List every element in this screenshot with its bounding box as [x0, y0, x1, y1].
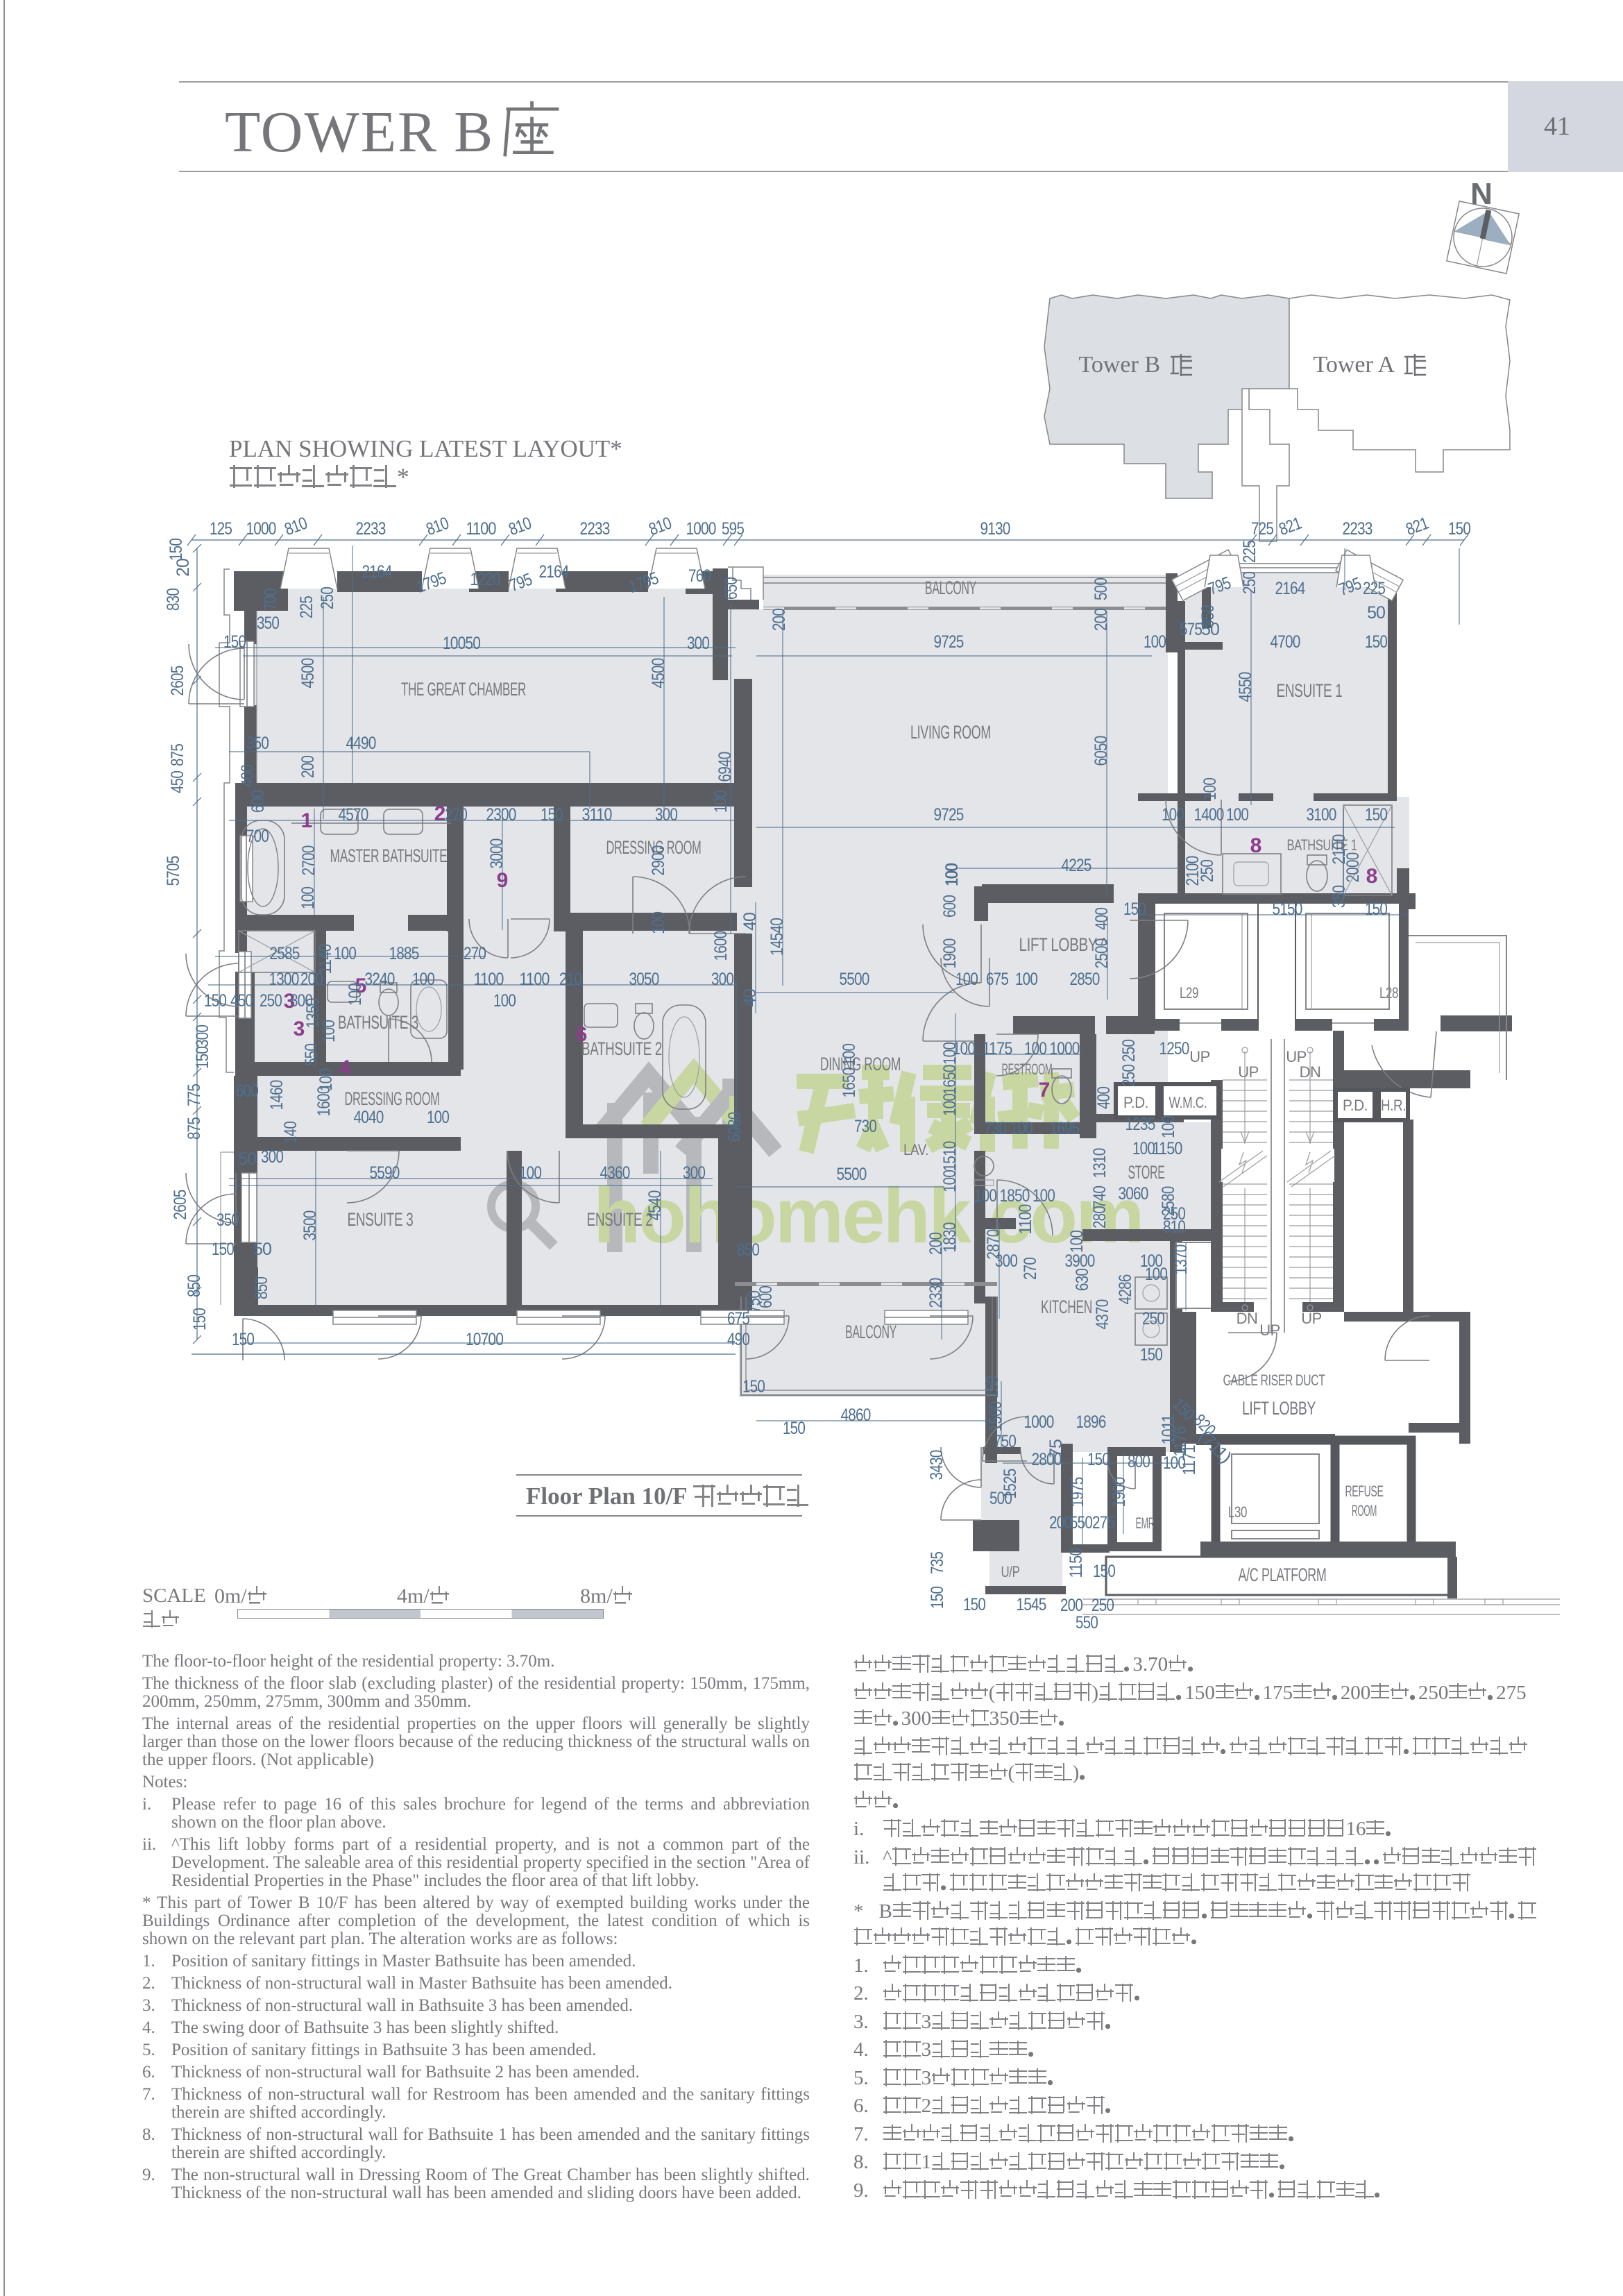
svg-text:100: 100: [711, 791, 731, 813]
svg-text:1500: 1500: [986, 1401, 1005, 1431]
svg-text:4500: 4500: [298, 658, 318, 688]
svg-text:BALCONY: BALCONY: [925, 577, 976, 598]
svg-text:5150: 5150: [1273, 900, 1302, 919]
svg-text:350: 350: [1329, 886, 1349, 908]
svg-text:600: 600: [236, 1081, 258, 1101]
svg-text:100: 100: [1145, 1265, 1167, 1284]
svg-text:1460: 1460: [267, 1080, 287, 1110]
svg-text:760: 760: [688, 566, 711, 586]
svg-text:490: 490: [727, 1330, 749, 1349]
svg-text:150: 150: [193, 1047, 212, 1069]
svg-text:KITCHEN: KITCHEN: [1041, 1297, 1092, 1317]
svg-text:100: 100: [1033, 1186, 1055, 1206]
svg-text:2: 2: [434, 802, 446, 825]
svg-text:L29: L29: [1180, 984, 1198, 1002]
svg-text:150: 150: [223, 632, 246, 652]
svg-text:4040: 4040: [354, 1108, 384, 1127]
svg-text:1695: 1695: [1050, 1119, 1080, 1138]
svg-text:DRESSING ROOM: DRESSING ROOM: [345, 1088, 440, 1109]
svg-text:4490: 4490: [346, 734, 376, 753]
svg-text:2500: 2500: [1092, 938, 1112, 968]
svg-text:650: 650: [722, 577, 741, 600]
svg-text:150: 150: [232, 1330, 254, 1349]
svg-text:150: 150: [1365, 900, 1387, 919]
svg-text:875: 875: [185, 1117, 204, 1140]
svg-text:1171: 1171: [1180, 1445, 1199, 1475]
svg-text:H.R.: H.R.: [1381, 1097, 1406, 1114]
svg-text:2233: 2233: [356, 519, 386, 539]
svg-text:150: 150: [928, 1587, 947, 1609]
svg-text:2233: 2233: [1343, 519, 1373, 539]
svg-text:150: 150: [1365, 805, 1387, 825]
svg-text:100: 100: [298, 887, 318, 909]
svg-text:225: 225: [1240, 541, 1259, 563]
svg-text:100: 100: [840, 1044, 859, 1066]
svg-text:1850: 1850: [1000, 1186, 1030, 1206]
svg-text:850: 850: [252, 1277, 271, 1299]
svg-text:675: 675: [986, 970, 1008, 989]
svg-text:210: 210: [559, 970, 581, 989]
svg-text:200: 200: [300, 970, 323, 989]
svg-text:100: 100: [493, 991, 516, 1011]
svg-text:3000: 3000: [487, 838, 507, 868]
svg-text:3110: 3110: [582, 805, 612, 825]
svg-text:ROOM: ROOM: [1352, 1502, 1377, 1519]
svg-text:7: 7: [1039, 1079, 1051, 1101]
svg-text:150: 150: [204, 991, 226, 1011]
svg-text:250: 250: [260, 991, 282, 1011]
svg-text:BATHSUITE 2: BATHSUITE 2: [581, 1038, 662, 1059]
svg-text:1011: 1011: [1159, 1415, 1178, 1444]
svg-text:675: 675: [727, 1309, 749, 1328]
svg-text:UP: UP: [1301, 1310, 1322, 1327]
svg-text:150: 150: [983, 1376, 1002, 1399]
svg-text:LAV.: LAV.: [903, 1141, 928, 1158]
svg-text:100: 100: [412, 970, 434, 989]
svg-text:100: 100: [1024, 1039, 1046, 1058]
svg-text:350: 350: [257, 614, 279, 633]
svg-text:9130: 9130: [980, 519, 1010, 539]
svg-text:L30: L30: [1228, 1503, 1247, 1521]
svg-text:3240: 3240: [365, 970, 395, 989]
svg-text:1150: 1150: [1153, 1139, 1182, 1158]
svg-text:270: 270: [464, 944, 486, 963]
svg-text:500: 500: [989, 1489, 1012, 1508]
svg-text:3100: 3100: [1307, 805, 1336, 825]
svg-text:4360: 4360: [600, 1163, 630, 1183]
svg-text:9725: 9725: [934, 632, 964, 652]
svg-text:750: 750: [994, 1432, 1016, 1451]
svg-text:400: 400: [1092, 908, 1112, 930]
svg-text:100: 100: [519, 1163, 541, 1183]
svg-text:1000: 1000: [1024, 1412, 1054, 1432]
svg-text:STORE: STORE: [1128, 1162, 1165, 1183]
svg-text:UP: UP: [1259, 1322, 1280, 1339]
svg-text:100: 100: [346, 984, 365, 1006]
svg-text:1250: 1250: [1159, 1039, 1189, 1058]
svg-text:40: 40: [740, 989, 760, 1007]
svg-text:BATHSUITE 3: BATHSUITE 3: [338, 1012, 418, 1033]
svg-text:ENSUITE 1: ENSUITE 1: [1277, 680, 1343, 701]
svg-text:1370: 1370: [1171, 1244, 1191, 1274]
svg-text:150: 150: [212, 1240, 234, 1259]
svg-text:630: 630: [1073, 1269, 1092, 1291]
svg-text:150: 150: [167, 539, 186, 561]
svg-text:2164: 2164: [1275, 579, 1306, 598]
svg-text:450: 450: [230, 991, 253, 1011]
svg-text:250: 250: [1119, 1065, 1139, 1087]
svg-text:ENSUITE 3: ENSUITE 3: [348, 1209, 414, 1230]
svg-text:100: 100: [1132, 1139, 1155, 1158]
svg-text:740: 740: [1090, 1186, 1110, 1208]
svg-text:575: 575: [1180, 620, 1202, 639]
svg-text:6: 6: [576, 1023, 588, 1046]
svg-text:8: 8: [1250, 834, 1262, 857]
svg-text:2300: 2300: [486, 805, 516, 825]
svg-text:821: 821: [1403, 514, 1431, 539]
svg-text:100: 100: [1226, 805, 1248, 825]
svg-text:2000: 2000: [1343, 852, 1363, 882]
svg-text:DN: DN: [1237, 1310, 1258, 1327]
svg-text:1100: 1100: [466, 519, 496, 539]
svg-text:550: 550: [302, 1044, 321, 1066]
svg-text:850: 850: [185, 1275, 204, 1297]
svg-text:2605: 2605: [171, 1190, 190, 1219]
svg-text:550: 550: [1070, 1513, 1092, 1533]
svg-text:250: 250: [318, 587, 337, 609]
svg-text:100: 100: [316, 1069, 336, 1091]
svg-text:400: 400: [1094, 1087, 1114, 1109]
svg-text:1175: 1175: [983, 1039, 1012, 1058]
svg-text:150: 150: [963, 1595, 985, 1614]
svg-text:2330: 2330: [926, 1278, 946, 1308]
svg-text:725: 725: [1251, 519, 1273, 539]
svg-text:100: 100: [974, 1186, 996, 1206]
svg-text:1220: 1220: [470, 570, 500, 589]
svg-text:150: 150: [541, 805, 563, 825]
svg-text:730: 730: [984, 1119, 1006, 1138]
svg-text:THE GREAT CHAMBER: THE GREAT CHAMBER: [401, 679, 526, 700]
svg-text:600: 600: [756, 1286, 776, 1308]
svg-text:150: 150: [1365, 632, 1387, 652]
svg-text:1310: 1310: [1090, 1148, 1110, 1178]
svg-text:2164: 2164: [539, 562, 570, 582]
svg-text:100: 100: [1015, 970, 1037, 989]
svg-text:40: 40: [740, 913, 760, 931]
svg-text:300: 300: [711, 970, 733, 989]
svg-text:MASTER BATHSUITE: MASTER BATHSUITE: [330, 845, 448, 866]
svg-text:50: 50: [253, 1240, 271, 1259]
svg-text:150: 150: [783, 1419, 805, 1438]
svg-text:200: 200: [1049, 1513, 1071, 1533]
svg-text:8: 8: [1366, 865, 1378, 888]
svg-text:ENSUITE 2: ENSUITE 2: [587, 1209, 653, 1230]
svg-text:875: 875: [168, 744, 187, 766]
svg-text:700: 700: [246, 827, 269, 846]
svg-text:4540: 4540: [645, 1190, 665, 1220]
svg-text:1830: 1830: [940, 1222, 960, 1252]
svg-text:4286: 4286: [1116, 1274, 1135, 1304]
svg-text:4550: 4550: [1236, 672, 1255, 702]
svg-text:6940: 6940: [715, 752, 735, 782]
svg-text:700: 700: [261, 589, 280, 611]
svg-text:830: 830: [164, 589, 183, 611]
svg-text:DN: DN: [1300, 1063, 1321, 1081]
svg-text:600: 600: [940, 895, 960, 918]
svg-text:270: 270: [445, 805, 467, 825]
svg-text:6080: 6080: [725, 1112, 745, 1142]
svg-text:4860: 4860: [841, 1406, 871, 1425]
svg-text:4700: 4700: [1271, 632, 1300, 652]
svg-text:P.D.: P.D.: [1343, 1097, 1368, 1114]
svg-text:250: 250: [1119, 1040, 1139, 1062]
svg-text:595: 595: [722, 519, 744, 539]
svg-text:EMR: EMR: [1136, 1514, 1155, 1532]
svg-text:100: 100: [942, 864, 962, 886]
svg-text:3060: 3060: [1119, 1184, 1148, 1204]
svg-text:280: 280: [1090, 1206, 1110, 1229]
svg-text:3500: 3500: [300, 1210, 320, 1240]
svg-text:810: 810: [646, 514, 674, 539]
svg-text:150: 150: [190, 1308, 210, 1331]
svg-text:850: 850: [737, 1240, 759, 1260]
svg-text:UP: UP: [1238, 1063, 1259, 1081]
svg-text:1510: 1510: [940, 1141, 960, 1171]
svg-text:2850: 2850: [1070, 970, 1100, 989]
svg-text:A/C PLATFORM: A/C PLATFORM: [1239, 1564, 1327, 1585]
svg-text:4225: 4225: [1062, 856, 1091, 875]
svg-text:1885: 1885: [389, 944, 419, 963]
svg-text:2585: 2585: [270, 944, 300, 963]
svg-text:150: 150: [1093, 1562, 1115, 1581]
svg-text:2233: 2233: [580, 519, 610, 539]
svg-text:10700: 10700: [466, 1330, 503, 1349]
svg-text:BALCONY: BALCONY: [845, 1322, 897, 1342]
svg-text:1400: 1400: [1194, 805, 1224, 825]
svg-text:810: 810: [282, 514, 309, 539]
svg-text:100: 100: [1200, 778, 1220, 800]
svg-text:1900: 1900: [1110, 1477, 1129, 1507]
svg-text:1900: 1900: [940, 938, 960, 968]
svg-text:150: 150: [1123, 900, 1146, 919]
svg-text:5500: 5500: [837, 1165, 867, 1184]
svg-text:100: 100: [1159, 1116, 1178, 1138]
svg-text:4500: 4500: [649, 658, 668, 688]
svg-text:775: 775: [185, 1084, 204, 1106]
svg-text:225: 225: [1363, 579, 1385, 598]
svg-text:4570: 4570: [339, 805, 368, 825]
svg-text:810: 810: [1163, 1217, 1185, 1237]
svg-text:250: 250: [1142, 1309, 1164, 1328]
svg-text:P.D.: P.D.: [1123, 1094, 1148, 1111]
svg-text:275: 275: [1092, 1513, 1114, 1533]
svg-text:100: 100: [1144, 632, 1166, 652]
svg-text:5705: 5705: [164, 856, 183, 886]
svg-text:UP: UP: [1189, 1048, 1210, 1065]
svg-text:3050: 3050: [629, 970, 659, 989]
svg-text:DINING ROOM: DINING ROOM: [820, 1054, 901, 1074]
svg-text:100: 100: [319, 1020, 339, 1043]
svg-text:50: 50: [1367, 603, 1385, 623]
svg-text:1300: 1300: [269, 970, 299, 989]
svg-text:810: 810: [423, 514, 451, 539]
svg-text:821: 821: [1276, 514, 1304, 539]
svg-text:225: 225: [297, 596, 316, 618]
svg-text:LIFT LOBBY: LIFT LOBBY: [1242, 1398, 1316, 1419]
svg-text:100: 100: [1162, 805, 1184, 825]
svg-text:1000: 1000: [686, 519, 716, 539]
svg-text:50: 50: [238, 1149, 256, 1169]
svg-text:2100: 2100: [1183, 856, 1203, 886]
svg-text:1975: 1975: [1068, 1477, 1087, 1507]
svg-text:450: 450: [168, 771, 187, 793]
svg-text:100: 100: [1010, 1119, 1033, 1138]
svg-text:6050: 6050: [1091, 736, 1111, 766]
svg-text:14540: 14540: [767, 918, 787, 956]
svg-text:150: 150: [1087, 1450, 1110, 1469]
svg-text:4370: 4370: [1093, 1299, 1112, 1329]
svg-text:140: 140: [281, 1122, 300, 1144]
svg-text:200: 200: [770, 609, 789, 631]
svg-text:200: 200: [1060, 1596, 1082, 1615]
svg-text:100: 100: [334, 944, 356, 963]
svg-text:1650: 1650: [940, 1065, 960, 1095]
svg-text:600: 600: [248, 791, 268, 813]
svg-text:100: 100: [955, 970, 978, 989]
svg-text:300: 300: [655, 805, 677, 825]
svg-text:300: 300: [193, 1025, 212, 1047]
svg-text:Tower A: Tower A: [1313, 352, 1395, 378]
svg-text:1100: 1100: [474, 970, 504, 989]
svg-text:1000: 1000: [246, 519, 276, 539]
svg-text:1100: 1100: [1016, 1204, 1035, 1234]
svg-text:350: 350: [246, 734, 269, 753]
svg-text:800: 800: [1128, 1452, 1150, 1471]
svg-text:50: 50: [1201, 620, 1219, 639]
svg-text:250: 250: [1240, 572, 1259, 594]
svg-text:RESTROOM: RESTROOM: [1002, 1061, 1053, 1078]
svg-text:100: 100: [940, 1170, 960, 1192]
svg-text:550: 550: [1076, 1613, 1098, 1632]
svg-text:350: 350: [216, 1210, 239, 1230]
svg-text:1235: 1235: [1125, 1115, 1155, 1134]
svg-text:W.M.C.: W.M.C.: [1169, 1094, 1207, 1111]
svg-text:REFUSE: REFUSE: [1345, 1483, 1384, 1500]
svg-text:300: 300: [687, 634, 709, 653]
svg-text:400: 400: [238, 765, 257, 787]
svg-text:4: 4: [339, 1056, 351, 1079]
svg-text:2164: 2164: [362, 562, 393, 582]
svg-text:1100: 1100: [520, 970, 550, 989]
svg-text:100: 100: [649, 912, 668, 934]
svg-text:100: 100: [953, 1039, 975, 1058]
svg-text:125: 125: [210, 519, 232, 539]
svg-text:300: 300: [683, 1163, 705, 1183]
svg-text:1545: 1545: [1017, 1595, 1046, 1614]
svg-text:CABLE RISER DUCT: CABLE RISER DUCT: [1223, 1371, 1325, 1389]
svg-text:LIVING ROOM: LIVING ROOM: [910, 722, 991, 743]
svg-text:9725: 9725: [934, 805, 964, 825]
svg-text:1600: 1600: [711, 931, 731, 961]
svg-text:5590: 5590: [370, 1163, 400, 1183]
svg-text:1000: 1000: [1050, 1039, 1080, 1058]
svg-text:1896: 1896: [1076, 1412, 1106, 1432]
svg-text:Tower B: Tower B: [1078, 352, 1160, 378]
svg-text:L28: L28: [1379, 984, 1398, 1002]
svg-text:U/P: U/P: [1001, 1563, 1020, 1580]
svg-text:150: 150: [1448, 519, 1470, 539]
svg-text:300: 300: [995, 1251, 1017, 1271]
svg-text:270: 270: [1021, 1258, 1040, 1280]
svg-text:1650: 1650: [840, 1067, 859, 1097]
svg-text:810: 810: [506, 514, 534, 539]
svg-text:500: 500: [1091, 578, 1111, 600]
svg-text:3900: 3900: [1065, 1251, 1095, 1271]
svg-text:200: 200: [1091, 609, 1111, 631]
svg-text:150: 150: [742, 1377, 765, 1396]
svg-text:100: 100: [427, 1108, 449, 1127]
svg-text:735: 735: [928, 1552, 947, 1574]
svg-text:2700: 2700: [299, 845, 318, 875]
svg-text:300: 300: [261, 1147, 283, 1167]
svg-text:2900: 2900: [649, 845, 668, 875]
svg-text:10050: 10050: [443, 634, 480, 653]
svg-text:100: 100: [940, 1094, 960, 1116]
svg-text:3430: 3430: [927, 1450, 946, 1480]
svg-text:2605: 2605: [168, 666, 187, 695]
svg-text:250: 250: [1091, 1596, 1114, 1615]
svg-text:730: 730: [854, 1117, 876, 1136]
svg-text:2800: 2800: [1032, 1450, 1062, 1469]
svg-text:100: 100: [1067, 1231, 1087, 1253]
svg-text:20: 20: [173, 559, 193, 577]
svg-text:150: 150: [1140, 1345, 1162, 1365]
svg-text:5500: 5500: [840, 970, 869, 989]
svg-text:1150: 1150: [1067, 1548, 1086, 1578]
svg-text:200: 200: [298, 756, 318, 778]
